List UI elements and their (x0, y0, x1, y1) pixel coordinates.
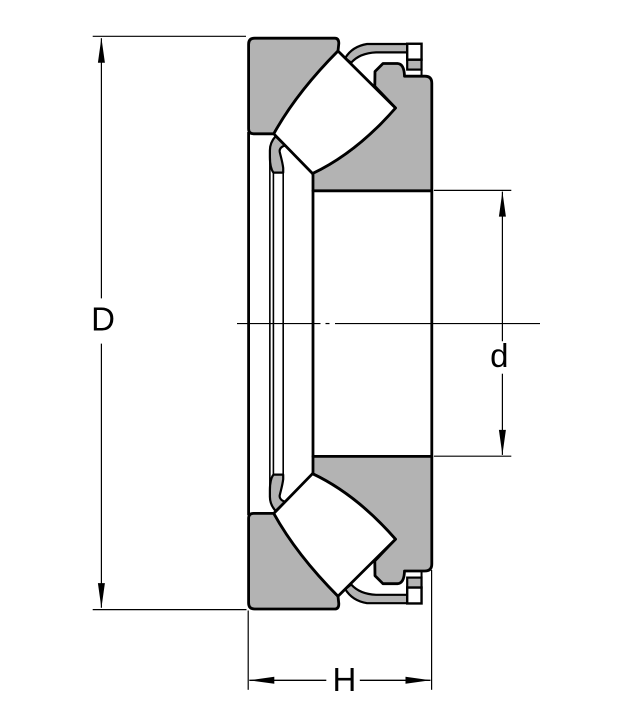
svg-text:H: H (332, 661, 356, 698)
svg-text:D: D (91, 300, 115, 337)
svg-text:d: d (490, 337, 508, 374)
